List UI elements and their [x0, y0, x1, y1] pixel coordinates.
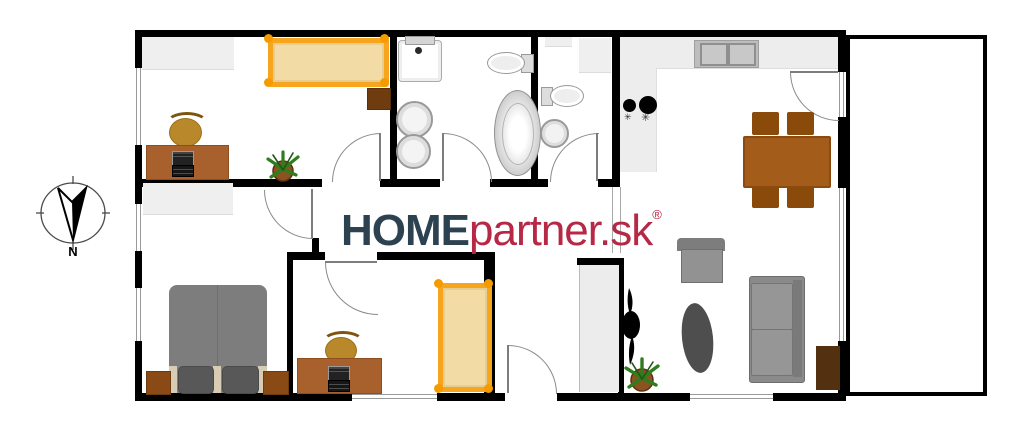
laptop-screen — [172, 151, 194, 166]
bedroom2-nightstand-left — [146, 371, 171, 395]
oval-rug — [678, 302, 716, 375]
wc-cabinet — [579, 38, 611, 73]
door-arc-room3 — [325, 262, 378, 315]
dining-chair — [787, 185, 814, 208]
sofa-backrest — [793, 280, 802, 377]
door-leaf-wc — [596, 133, 598, 181]
washing-machine-1 — [396, 101, 433, 138]
window-left-1 — [135, 68, 142, 145]
dining-table — [743, 136, 831, 188]
wall-bathroom-left — [390, 37, 397, 179]
laptop-screen — [328, 366, 350, 381]
laptop-keyboard — [328, 380, 350, 392]
door-arc-bedroom2 — [264, 190, 313, 239]
bed-seam — [217, 285, 218, 367]
window-living-right — [838, 188, 846, 341]
logo-home-text: HOME — [341, 206, 469, 255]
bed-knob — [484, 279, 493, 288]
coat-stand-icon — [615, 288, 647, 366]
bedroom1-single-bed — [268, 38, 389, 87]
wall-hall-top-b — [380, 179, 440, 187]
bathroom-sink-faucet — [405, 36, 435, 45]
potted-plant-icon — [622, 356, 662, 394]
door-arc-bathroom — [443, 133, 492, 182]
bedroom1-nightstand — [367, 88, 391, 110]
bed-knob — [434, 384, 443, 393]
floorplan-canvas: N — [0, 0, 1024, 435]
bed-knob — [264, 78, 273, 87]
door-leaf-bedroom1 — [379, 133, 381, 181]
bedroom2-wardrobe — [143, 183, 233, 215]
kitchen-sink-bowl-left — [700, 43, 728, 66]
laptop-keyboard — [172, 165, 194, 177]
wall-hall-top-d — [598, 179, 620, 187]
wall-hall-top-c — [490, 179, 548, 187]
wall-outer-top — [135, 30, 846, 37]
door-leaf-bedroom2 — [311, 189, 313, 238]
toilet2-bowl — [550, 85, 584, 107]
bathtub-inner — [502, 103, 534, 165]
window-living-bottom — [690, 393, 773, 401]
door-arc-entrance — [508, 345, 557, 394]
homepartner-logo: HOMEpartner.sk® — [341, 192, 662, 264]
wall-wc-kitchen — [612, 37, 620, 179]
bedroom2-nightstand-right — [263, 371, 289, 395]
sofa-cushion — [751, 283, 793, 330]
door-arc-bedroom1 — [332, 133, 381, 182]
bed-knob — [484, 384, 493, 393]
burner-icon: ✳ — [641, 111, 650, 124]
armchair-seat — [681, 249, 723, 283]
door-leaf-bathroom — [442, 133, 444, 181]
dining-chair — [752, 185, 779, 208]
entrance-door-gap — [505, 393, 557, 401]
burner-icon: ✳ — [624, 113, 632, 123]
bathroom-sink-drain — [415, 47, 422, 54]
registered-trademark-icon: ® — [652, 207, 662, 222]
dining-chair — [787, 112, 814, 135]
bedroom1-desk-chair — [169, 118, 202, 147]
sofa-cushion — [751, 329, 793, 376]
bed-knob — [380, 78, 389, 87]
compass-north-label: N — [68, 244, 77, 258]
terrace-room — [846, 35, 987, 396]
bed-knob — [380, 34, 389, 43]
tv-cabinet — [816, 346, 840, 390]
door-leaf-entrance — [507, 345, 509, 393]
bed-foot-post — [213, 366, 221, 393]
bathroom-sink — [398, 40, 442, 82]
bedroom1-wardrobe — [142, 37, 234, 70]
kitchen-sink-bowl-right — [728, 43, 756, 66]
window-left-3 — [135, 288, 142, 341]
hall-closet — [579, 265, 619, 392]
washing-machine-2 — [396, 134, 431, 169]
logo-partner-text: partner.sk — [469, 206, 652, 255]
window-left-2 — [135, 204, 142, 251]
door-gap-kitchen-terrace — [838, 72, 846, 117]
window-room3-bottom — [352, 393, 437, 401]
door-leaf-terrace — [790, 71, 838, 73]
bed-knob — [434, 279, 443, 288]
stove-burner-small — [623, 99, 636, 112]
bed-knob — [264, 34, 273, 43]
bed-pillow — [178, 366, 214, 394]
toilet1-bowl — [487, 52, 525, 74]
wc-sink — [540, 119, 569, 148]
bedroom1-laptop — [172, 151, 194, 176]
dining-chair — [752, 112, 779, 135]
bed-pillow — [222, 366, 259, 394]
wc-shelf — [545, 37, 572, 47]
potted-plant-icon — [263, 150, 303, 184]
room3-laptop — [328, 366, 350, 391]
room3-single-bed — [438, 283, 492, 392]
compass-rose-icon: N — [36, 174, 114, 258]
